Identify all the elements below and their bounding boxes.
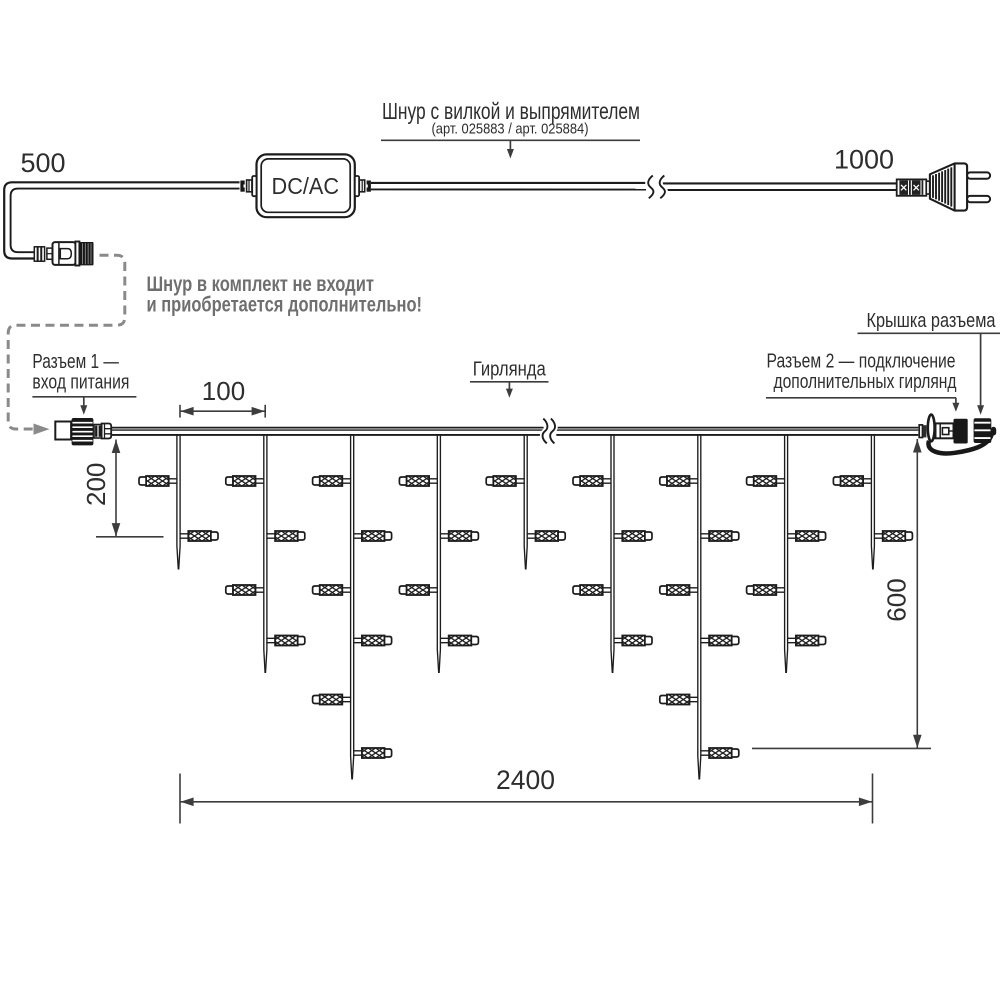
svg-text:200: 200	[81, 463, 111, 506]
svg-text:100: 100	[202, 376, 245, 406]
svg-text:500: 500	[20, 148, 65, 178]
svg-text:1000: 1000	[834, 145, 894, 175]
svg-text:(арт. 025883 / арт. 025884): (арт. 025883 / арт. 025884)	[432, 121, 589, 138]
svg-text:2400: 2400	[496, 765, 555, 795]
svg-text:дополнительных гирлянд: дополнительных гирлянд	[774, 370, 957, 393]
svg-text:вход питания: вход питания	[32, 371, 129, 394]
svg-text:600: 600	[882, 578, 912, 621]
svg-text:Крышка разъема: Крышка разъема	[867, 309, 996, 332]
svg-text:и приобретается дополнительно!: и приобретается дополнительно!	[147, 293, 423, 317]
svg-text:DC/AC: DC/AC	[272, 173, 340, 199]
svg-text:Гирлянда: Гирлянда	[473, 358, 546, 381]
